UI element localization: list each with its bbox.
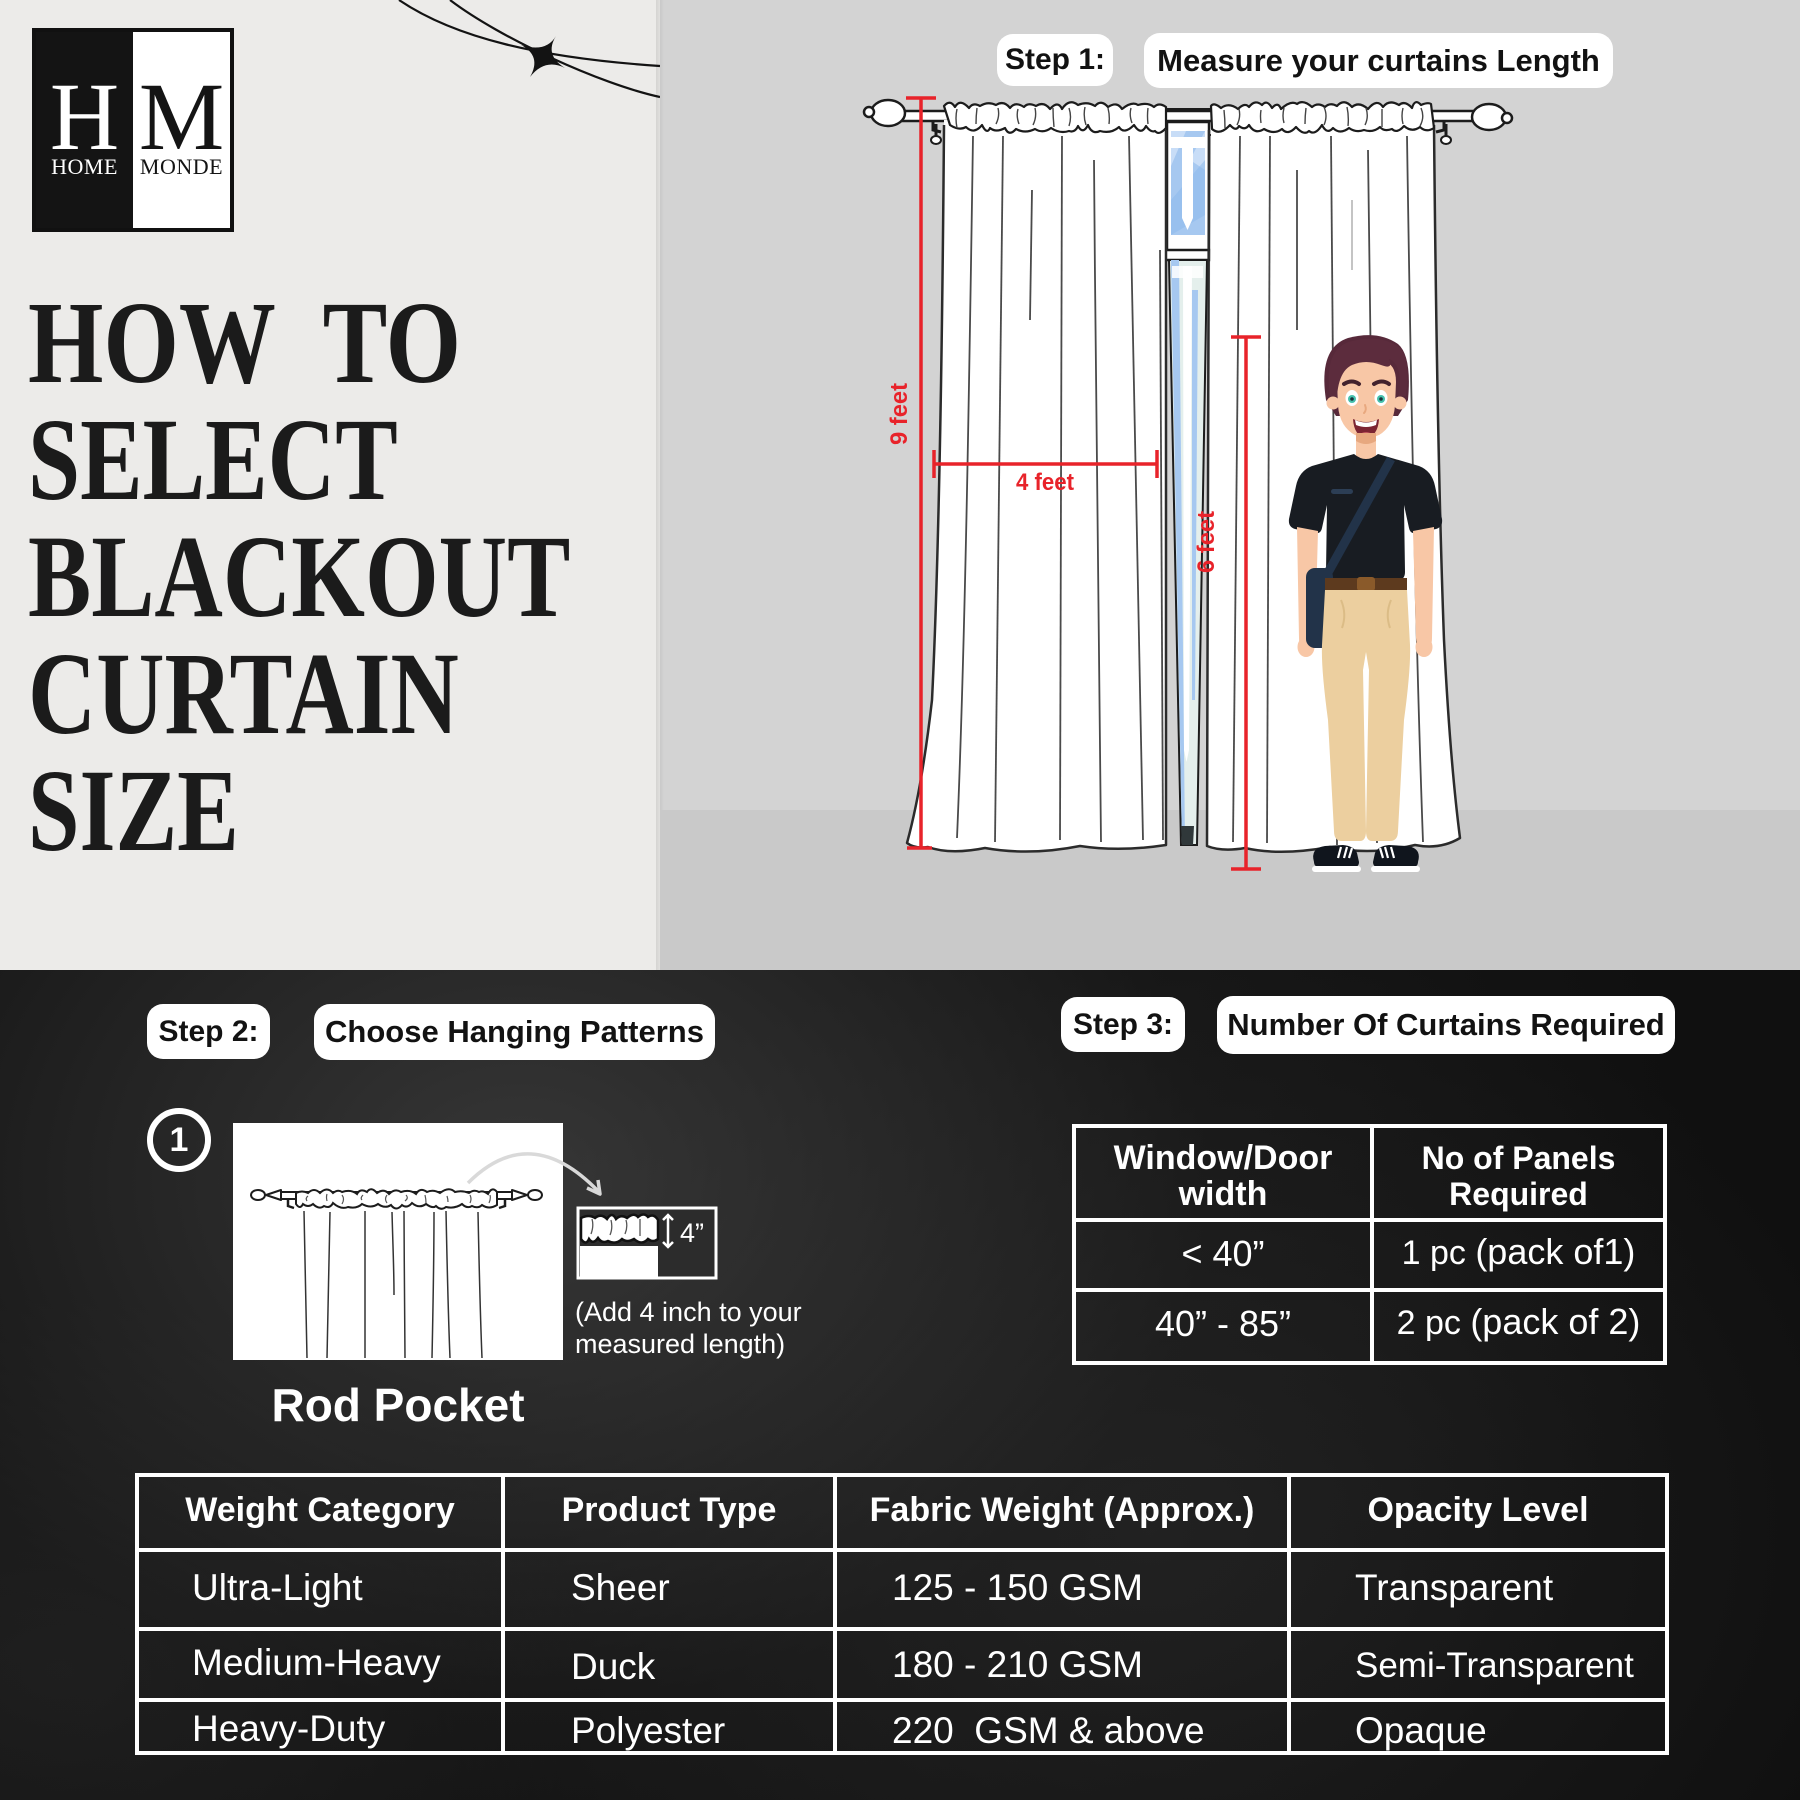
svg-text:6 feet: 6 feet [1193, 511, 1220, 573]
svg-text:4”: 4” [680, 1218, 704, 1248]
svg-text:9 feet: 9 feet [886, 383, 913, 445]
svg-text:4 feet: 4 feet [1016, 469, 1074, 496]
